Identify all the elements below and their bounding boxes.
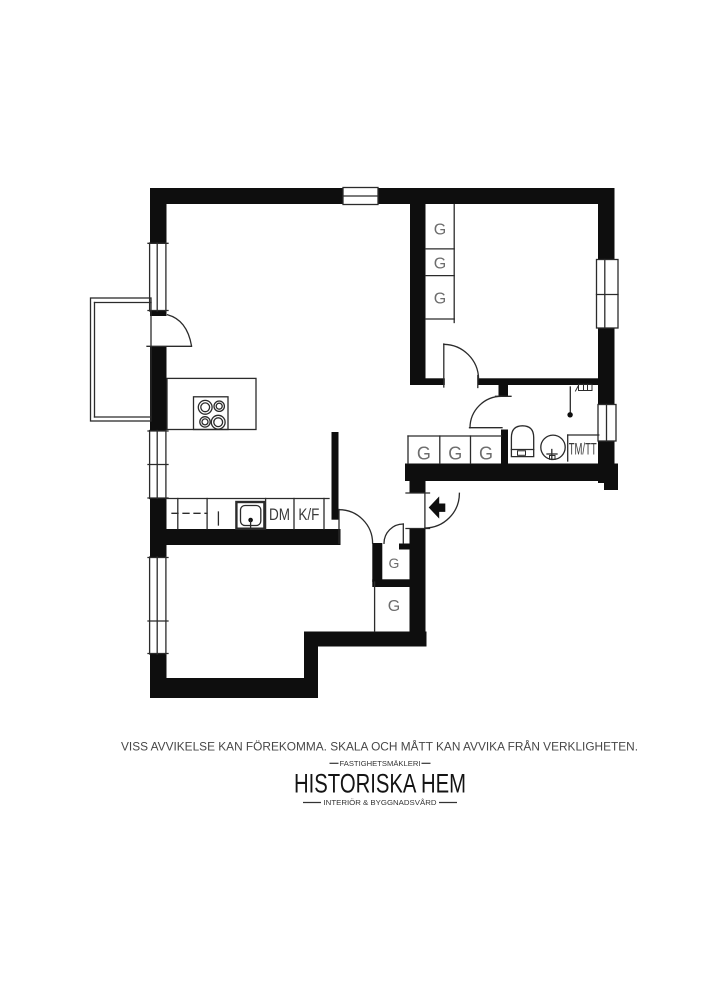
svg-text:G: G	[479, 444, 493, 464]
svg-text:G: G	[434, 290, 446, 307]
svg-text:INTERIÖR & BYGGNADSVÅRD: INTERIÖR & BYGGNADSVÅRD	[324, 798, 438, 807]
svg-text:VISS AVVIKELSE KAN FÖREKOMMA.: VISS AVVIKELSE KAN FÖREKOMMA. SKALA OCH …	[121, 741, 638, 754]
svg-text:G: G	[434, 256, 446, 273]
svg-text:G: G	[448, 444, 462, 464]
svg-text:K/F: K/F	[298, 505, 319, 524]
svg-text:G: G	[388, 598, 400, 615]
svg-text:G: G	[417, 444, 431, 464]
svg-text:DM: DM	[269, 505, 290, 524]
svg-text:G: G	[389, 555, 400, 571]
svg-text:G: G	[434, 221, 446, 238]
svg-text:FASTIGHETSMÄKLERI: FASTIGHETSMÄKLERI	[340, 759, 421, 768]
svg-text:TM/TT: TM/TT	[569, 440, 597, 458]
svg-text:HISTORISKA HEM: HISTORISKA HEM	[294, 769, 466, 799]
